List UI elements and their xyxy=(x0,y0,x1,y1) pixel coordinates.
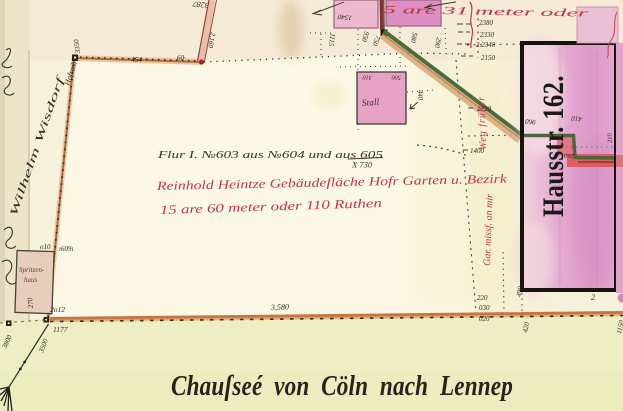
svg-text:2.2340: 2.2340 xyxy=(476,41,496,49)
svg-text:2330: 2330 xyxy=(480,31,495,39)
svg-text:2380: 2380 xyxy=(479,19,494,27)
svg-text:500: 500 xyxy=(390,73,401,81)
svg-text:270: 270 xyxy=(26,297,35,309)
svg-text:1400: 1400 xyxy=(470,147,485,155)
svg-text:3,580: 3,580 xyxy=(270,302,289,312)
svg-text:Spritzen-: Spritzen- xyxy=(19,266,45,274)
svg-text:454: 454 xyxy=(131,55,143,64)
svg-text:210: 210 xyxy=(607,132,614,143)
svg-text:Hausstr. 162.: Hausstr. 162. xyxy=(537,75,570,217)
svg-text:410: 410 xyxy=(571,114,583,123)
svg-text:1177: 1177 xyxy=(53,325,68,334)
svg-text:haus: haus xyxy=(24,276,38,284)
svg-text:Weg früher: Weg früher xyxy=(476,96,489,151)
svg-text:3287: 3287 xyxy=(191,0,210,10)
svg-text:490: 490 xyxy=(515,285,524,297)
svg-text:1720: 1720 xyxy=(477,105,492,113)
svg-text:310: 310 xyxy=(361,73,373,81)
svg-text:60·: 60· xyxy=(177,54,186,62)
svg-text:Stall: Stall xyxy=(362,98,380,109)
svg-text:220: 220 xyxy=(477,294,488,302)
svg-text:o10: o10 xyxy=(40,243,51,251)
svg-text:960: 960 xyxy=(525,117,537,126)
svg-text:260: 260 xyxy=(563,151,574,159)
svg-text:020: 020 xyxy=(479,315,490,323)
svg-text:2150: 2150 xyxy=(481,54,496,62)
svg-text:440: 440 xyxy=(416,90,423,101)
svg-text:2: 2 xyxy=(591,293,595,302)
svg-text:030: 030 xyxy=(479,304,490,312)
svg-text:2o12: 2o12 xyxy=(50,305,65,314)
svg-text:Chauſseé von Cöln nach Lennep: Chauſseé von Cöln nach Lennep xyxy=(171,371,513,402)
svg-text:X 730: X 730 xyxy=(351,160,373,170)
svg-text:ı609ı: ı609ı xyxy=(59,245,73,253)
